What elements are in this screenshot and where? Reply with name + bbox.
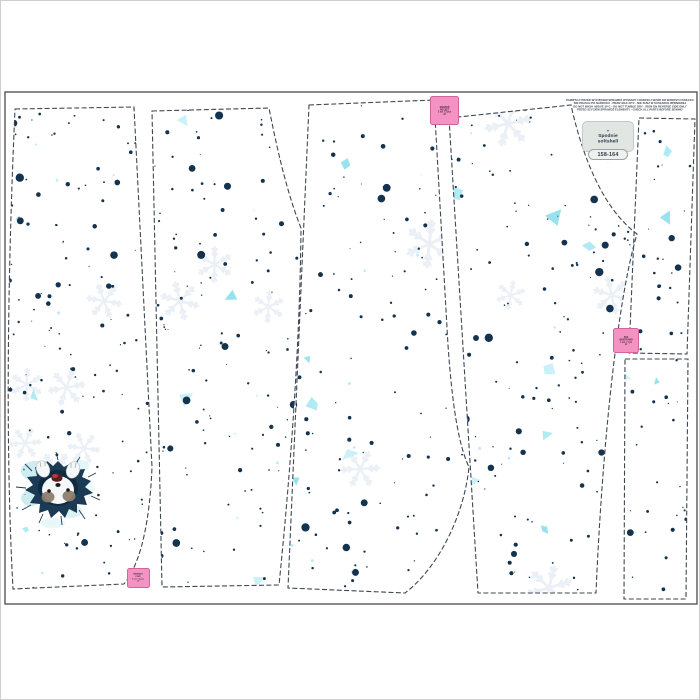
- navy-dot: [580, 483, 585, 488]
- navy-dot: [38, 530, 40, 532]
- navy-dot: [163, 324, 164, 325]
- navy-dot: [461, 454, 463, 456]
- navy-dot: [516, 120, 517, 121]
- navy-dot: [307, 487, 310, 490]
- navy-dot: [528, 255, 530, 257]
- navy-dot: [389, 95, 395, 101]
- navy-dot: [304, 114, 305, 115]
- navy-dot: [18, 116, 21, 119]
- navy-dot: [162, 450, 163, 451]
- navy-dot: [59, 347, 61, 349]
- navy-dot: [508, 561, 512, 565]
- navy-dot: [509, 571, 513, 575]
- navy-dot: [418, 248, 420, 250]
- navy-dot: [269, 146, 271, 148]
- navy-dot: [514, 572, 515, 573]
- navy-dot: [100, 323, 104, 327]
- navy-dot: [644, 132, 647, 135]
- piece-label-cuff: MANKIETCUFF2 szt. / 2 pcsx2: [127, 568, 150, 588]
- mint-speck: [291, 196, 293, 198]
- navy-dot: [475, 436, 476, 437]
- navy-dot: [653, 130, 656, 133]
- navy-dot: [581, 362, 583, 364]
- navy-dot: [279, 221, 284, 226]
- eye-patch-left: [42, 492, 55, 503]
- navy-dot: [262, 512, 264, 514]
- navy-dot: [456, 317, 459, 320]
- navy-dot: [165, 130, 169, 134]
- navy-dot: [18, 321, 20, 323]
- navy-dot: [381, 318, 384, 321]
- navy-dot: [74, 115, 76, 117]
- navy-dot: [529, 577, 531, 579]
- navy-dot: [488, 261, 491, 264]
- navy-dot: [573, 577, 575, 579]
- navy-dot: [165, 329, 166, 330]
- navy-dot: [426, 598, 428, 600]
- navy-dot: [247, 382, 249, 384]
- navy-dot: [25, 179, 27, 181]
- navy-dot: [401, 118, 403, 120]
- navy-dot: [192, 369, 196, 373]
- navy-dot: [210, 117, 212, 119]
- product-name: Spodnie softshell: [596, 132, 621, 143]
- navy-dot: [64, 543, 65, 544]
- navy-dot: [130, 470, 132, 472]
- navy-dot: [197, 136, 200, 139]
- navy-dot: [301, 117, 303, 119]
- navy-dot: [69, 284, 71, 286]
- navy-dot: [108, 572, 111, 575]
- navy-dot: [509, 388, 510, 389]
- navy-dot: [393, 232, 395, 234]
- navy-dot: [452, 159, 453, 160]
- navy-dot: [599, 354, 601, 356]
- eye-patch-right: [63, 491, 76, 502]
- navy-dot: [268, 469, 270, 471]
- navy-dot: [529, 121, 530, 122]
- navy-dot: [172, 539, 180, 547]
- navy-dot: [285, 436, 286, 437]
- navy-dot: [520, 450, 525, 455]
- navy-dot: [101, 276, 103, 278]
- nose: [55, 483, 60, 487]
- navy-dot: [55, 224, 57, 226]
- navy-dot: [183, 397, 191, 405]
- navy-dot: [53, 133, 55, 135]
- navy-dot: [58, 333, 60, 335]
- navy-dot: [65, 257, 68, 260]
- navy-dot: [134, 538, 136, 540]
- navy-dot: [437, 595, 438, 596]
- navy-dot: [129, 539, 130, 540]
- navy-dot: [483, 144, 486, 147]
- mint-speck: [41, 572, 43, 574]
- navy-dot: [657, 296, 661, 300]
- navy-dot: [187, 286, 188, 287]
- piece-label-pocket: KIESZEŃPOCKET2 szt. / 2 pcsx2: [430, 96, 459, 125]
- navy-dot: [260, 123, 262, 125]
- mint-speck: [154, 538, 155, 539]
- navy-dot: [111, 285, 114, 288]
- navy-dot: [11, 264, 12, 265]
- navy-dot: [233, 549, 235, 551]
- navy-dot: [587, 470, 590, 473]
- navy-dot: [339, 458, 341, 460]
- navy-dot: [263, 577, 266, 580]
- navy-dot: [333, 188, 335, 190]
- navy-dot: [171, 156, 173, 158]
- navy-dot: [528, 205, 529, 206]
- navy-dot: [195, 420, 199, 424]
- navy-dot: [684, 210, 685, 211]
- navy-dot: [36, 192, 41, 197]
- navy-dot: [261, 119, 263, 121]
- navy-dot: [138, 595, 143, 600]
- navy-dot: [298, 375, 302, 379]
- navy-dot: [657, 257, 659, 259]
- navy-dot: [596, 440, 597, 441]
- navy-dot: [500, 534, 503, 537]
- navy-dot: [361, 134, 365, 138]
- navy-dot: [189, 165, 196, 172]
- navy-dot: [68, 122, 70, 124]
- navy-dot: [402, 458, 403, 459]
- navy-dot: [343, 544, 350, 551]
- navy-dot: [646, 510, 649, 513]
- navy-dot: [489, 170, 491, 172]
- navy-dot: [473, 335, 479, 341]
- navy-dot: [70, 367, 73, 370]
- navy-dot: [278, 96, 281, 99]
- navy-dot: [552, 562, 554, 564]
- navy-dot: [610, 526, 612, 528]
- navy-dot: [297, 178, 299, 180]
- navy-dot: [394, 482, 395, 483]
- navy-dot: [593, 251, 595, 253]
- navy-dot: [126, 314, 129, 317]
- navy-dot: [460, 194, 463, 197]
- navy-dot: [29, 384, 31, 386]
- navy-dot: [361, 105, 362, 106]
- navy-dot: [9, 100, 10, 101]
- navy-dot: [419, 188, 421, 190]
- mint-speck: [348, 382, 351, 385]
- navy-dot: [146, 451, 148, 453]
- brand-mark-icon: ✦: [596, 129, 621, 133]
- navy-dot: [288, 526, 289, 527]
- navy-dot: [96, 167, 100, 171]
- navy-dot: [298, 540, 300, 542]
- navy-dot: [110, 319, 111, 320]
- navy-dot: [554, 302, 556, 304]
- navy-dot: [18, 217, 19, 218]
- navy-dot: [276, 443, 280, 447]
- navy-dot: [201, 295, 202, 296]
- navy-dot: [188, 369, 190, 371]
- navy-dot: [530, 116, 532, 118]
- navy-dot: [41, 293, 42, 294]
- navy-dot: [430, 146, 434, 150]
- navy-dot: [49, 534, 51, 536]
- navy-dot: [335, 402, 336, 403]
- navy-dot: [117, 530, 120, 533]
- navy-dot: [163, 326, 165, 328]
- navy-dot: [587, 535, 590, 538]
- navy-dot: [437, 320, 441, 324]
- navy-dot: [89, 266, 90, 267]
- navy-dot: [551, 267, 554, 270]
- navy-dot: [285, 122, 287, 124]
- navy-dot: [145, 108, 149, 112]
- navy-dot: [335, 508, 339, 512]
- navy-dot: [349, 248, 350, 249]
- navy-dot: [200, 154, 201, 155]
- navy-dot: [445, 408, 446, 409]
- navy-dot: [514, 202, 516, 204]
- navy-dot: [305, 313, 306, 314]
- navy-dot: [421, 257, 423, 259]
- navy-dot: [180, 297, 183, 300]
- navy-dot: [141, 499, 143, 501]
- navy-dot: [103, 562, 105, 564]
- navy-dot: [664, 395, 668, 399]
- navy-dot: [352, 569, 359, 576]
- navy-dot: [37, 102, 39, 104]
- navy-dot: [153, 354, 157, 358]
- navy-dot: [65, 543, 68, 546]
- navy-dot: [507, 303, 509, 305]
- navy-dot: [476, 249, 478, 251]
- navy-dot: [478, 481, 480, 483]
- navy-dot: [122, 440, 124, 442]
- navy-dot: [393, 314, 396, 317]
- navy-dot: [535, 387, 537, 389]
- navy-dot: [29, 429, 31, 431]
- navy-dot: [509, 170, 511, 172]
- mint-speck: [57, 311, 60, 314]
- navy-dot: [462, 415, 470, 423]
- navy-dot: [427, 456, 430, 459]
- mint-speck: [439, 564, 442, 567]
- navy-dot: [319, 371, 322, 374]
- navy-dot: [504, 304, 506, 306]
- piece-cuff-strip: [624, 359, 688, 599]
- navy-dot: [547, 218, 548, 219]
- navy-dot: [472, 163, 473, 164]
- navy-dot: [158, 220, 160, 222]
- navy-dot: [405, 346, 409, 350]
- navy-dot: [51, 134, 53, 136]
- navy-dot: [514, 515, 516, 517]
- navy-dot: [532, 397, 535, 400]
- navy-dot: [659, 140, 662, 143]
- navy-dot: [361, 499, 368, 506]
- navy-dot: [23, 391, 27, 395]
- navy-dot: [425, 494, 428, 497]
- navy-dot: [436, 278, 438, 280]
- navy-dot: [271, 291, 272, 292]
- navy-dot: [407, 454, 411, 458]
- navy-dot: [122, 394, 123, 395]
- navy-dot: [551, 154, 553, 156]
- navy-dot: [50, 327, 52, 329]
- navy-dot: [561, 451, 565, 455]
- navy-dot: [507, 593, 511, 597]
- navy-dot: [62, 242, 63, 243]
- navy-dot: [378, 195, 386, 203]
- navy-dot: [261, 179, 265, 183]
- navy-dot: [193, 591, 196, 594]
- navy-dot: [525, 242, 529, 246]
- navy-dot: [414, 560, 415, 561]
- navy-dot: [363, 550, 365, 552]
- navy-dot: [31, 119, 32, 120]
- navy-dot: [492, 173, 494, 175]
- tongue: [52, 474, 58, 478]
- navy-dot: [315, 533, 318, 536]
- navy-dot: [287, 338, 289, 340]
- navy-dot: [94, 374, 96, 376]
- navy-dot: [200, 345, 202, 347]
- navy-dot: [424, 212, 426, 214]
- navy-dot: [689, 165, 692, 168]
- navy-dot: [333, 140, 335, 142]
- navy-dot: [360, 242, 362, 244]
- navy-dot: [200, 282, 202, 284]
- navy-dot: [67, 431, 71, 435]
- navy-dot: [171, 592, 173, 594]
- navy-dot: [15, 134, 17, 136]
- navy-dot: [679, 486, 680, 487]
- piece-leg-1: [8, 107, 152, 589]
- navy-dot: [671, 272, 673, 274]
- navy-dot: [454, 567, 458, 571]
- navy-dot: [347, 512, 349, 514]
- navy-dot: [691, 369, 693, 371]
- mint-speck: [363, 270, 365, 272]
- navy-dot: [251, 489, 253, 491]
- navy-dot: [191, 547, 193, 549]
- navy-dot: [656, 481, 658, 483]
- navy-dot: [318, 272, 323, 277]
- navy-dot: [220, 342, 223, 345]
- navy-dot: [238, 468, 242, 472]
- navy-dot: [604, 556, 605, 557]
- navy-dot: [199, 347, 200, 348]
- mint-speck: [311, 559, 314, 562]
- navy-dot: [501, 464, 502, 465]
- size-tag: ✦ Spodnie softshell 158-164 · · ·: [581, 120, 635, 166]
- navy-dot: [636, 444, 638, 446]
- navy-dot: [227, 504, 229, 506]
- navy-dot: [173, 238, 175, 240]
- navy-dot: [236, 334, 240, 338]
- navy-dot: [616, 543, 617, 544]
- navy-dot: [612, 232, 616, 236]
- navy-dot: [48, 294, 52, 298]
- navy-dot: [106, 283, 112, 289]
- navy-dot: [543, 287, 547, 291]
- navy-dot: [116, 370, 118, 372]
- navy-dot: [668, 403, 669, 404]
- navy-dot: [568, 397, 570, 399]
- navy-dot: [506, 226, 508, 228]
- navy-dot: [70, 354, 72, 356]
- navy-dot: [590, 196, 598, 204]
- navy-dot: [383, 184, 391, 192]
- navy-dot: [379, 502, 381, 504]
- navy-dot: [129, 150, 133, 154]
- piece-leg-4: [449, 105, 637, 593]
- piece-waistband-strip: [629, 118, 695, 354]
- navy-dot: [627, 231, 629, 233]
- navy-dot: [144, 217, 145, 218]
- navy-dot: [590, 216, 592, 218]
- navy-dot: [595, 268, 603, 276]
- navy-dot: [201, 182, 204, 185]
- navy-dot: [639, 348, 641, 350]
- navy-dot: [305, 449, 307, 451]
- navy-dot: [511, 551, 517, 557]
- care-instructions-text: PAMIĘTAJ! PRZED WYCIĘCIEM SPRAWDŹ WYMIAR…: [566, 98, 694, 111]
- navy-dot: [86, 247, 89, 250]
- navy-dot: [16, 507, 18, 509]
- navy-dot: [598, 449, 604, 455]
- navy-dot: [306, 431, 310, 435]
- navy-dot: [344, 585, 346, 587]
- navy-dot: [488, 465, 494, 471]
- navy-dot: [498, 115, 500, 117]
- navy-dot: [581, 371, 584, 374]
- mint-speck: [253, 209, 254, 210]
- navy-dot: [652, 400, 655, 403]
- navy-dot: [411, 330, 417, 336]
- navy-dot: [470, 268, 472, 270]
- navy-dot: [669, 332, 673, 336]
- navy-dot: [328, 192, 331, 195]
- navy-dot: [676, 515, 678, 517]
- navy-dot: [154, 165, 155, 166]
- navy-dot: [570, 539, 573, 542]
- navy-dot: [251, 281, 254, 284]
- navy-dot: [49, 330, 50, 331]
- navy-dot: [203, 429, 205, 431]
- navy-dot: [675, 264, 682, 271]
- navy-dot: [256, 259, 258, 261]
- navy-dot: [662, 165, 663, 166]
- navy-dot: [163, 446, 166, 449]
- navy-dot: [199, 243, 201, 245]
- navy-dot: [267, 269, 270, 272]
- navy-dot: [588, 224, 589, 225]
- navy-dot: [680, 332, 682, 334]
- navy-dot: [185, 468, 186, 469]
- navy-dot: [509, 447, 511, 449]
- navy-dot: [75, 376, 77, 378]
- navy-dot: [291, 151, 293, 153]
- navy-dot: [527, 519, 529, 521]
- navy-dot: [160, 531, 164, 535]
- navy-dot: [267, 351, 269, 353]
- navy-dot: [210, 418, 212, 420]
- navy-dot: [171, 188, 173, 190]
- navy-dot: [602, 260, 604, 262]
- navy-dot: [154, 386, 156, 388]
- navy-dot: [109, 364, 111, 366]
- navy-dot: [632, 576, 633, 577]
- navy-dot: [662, 258, 663, 259]
